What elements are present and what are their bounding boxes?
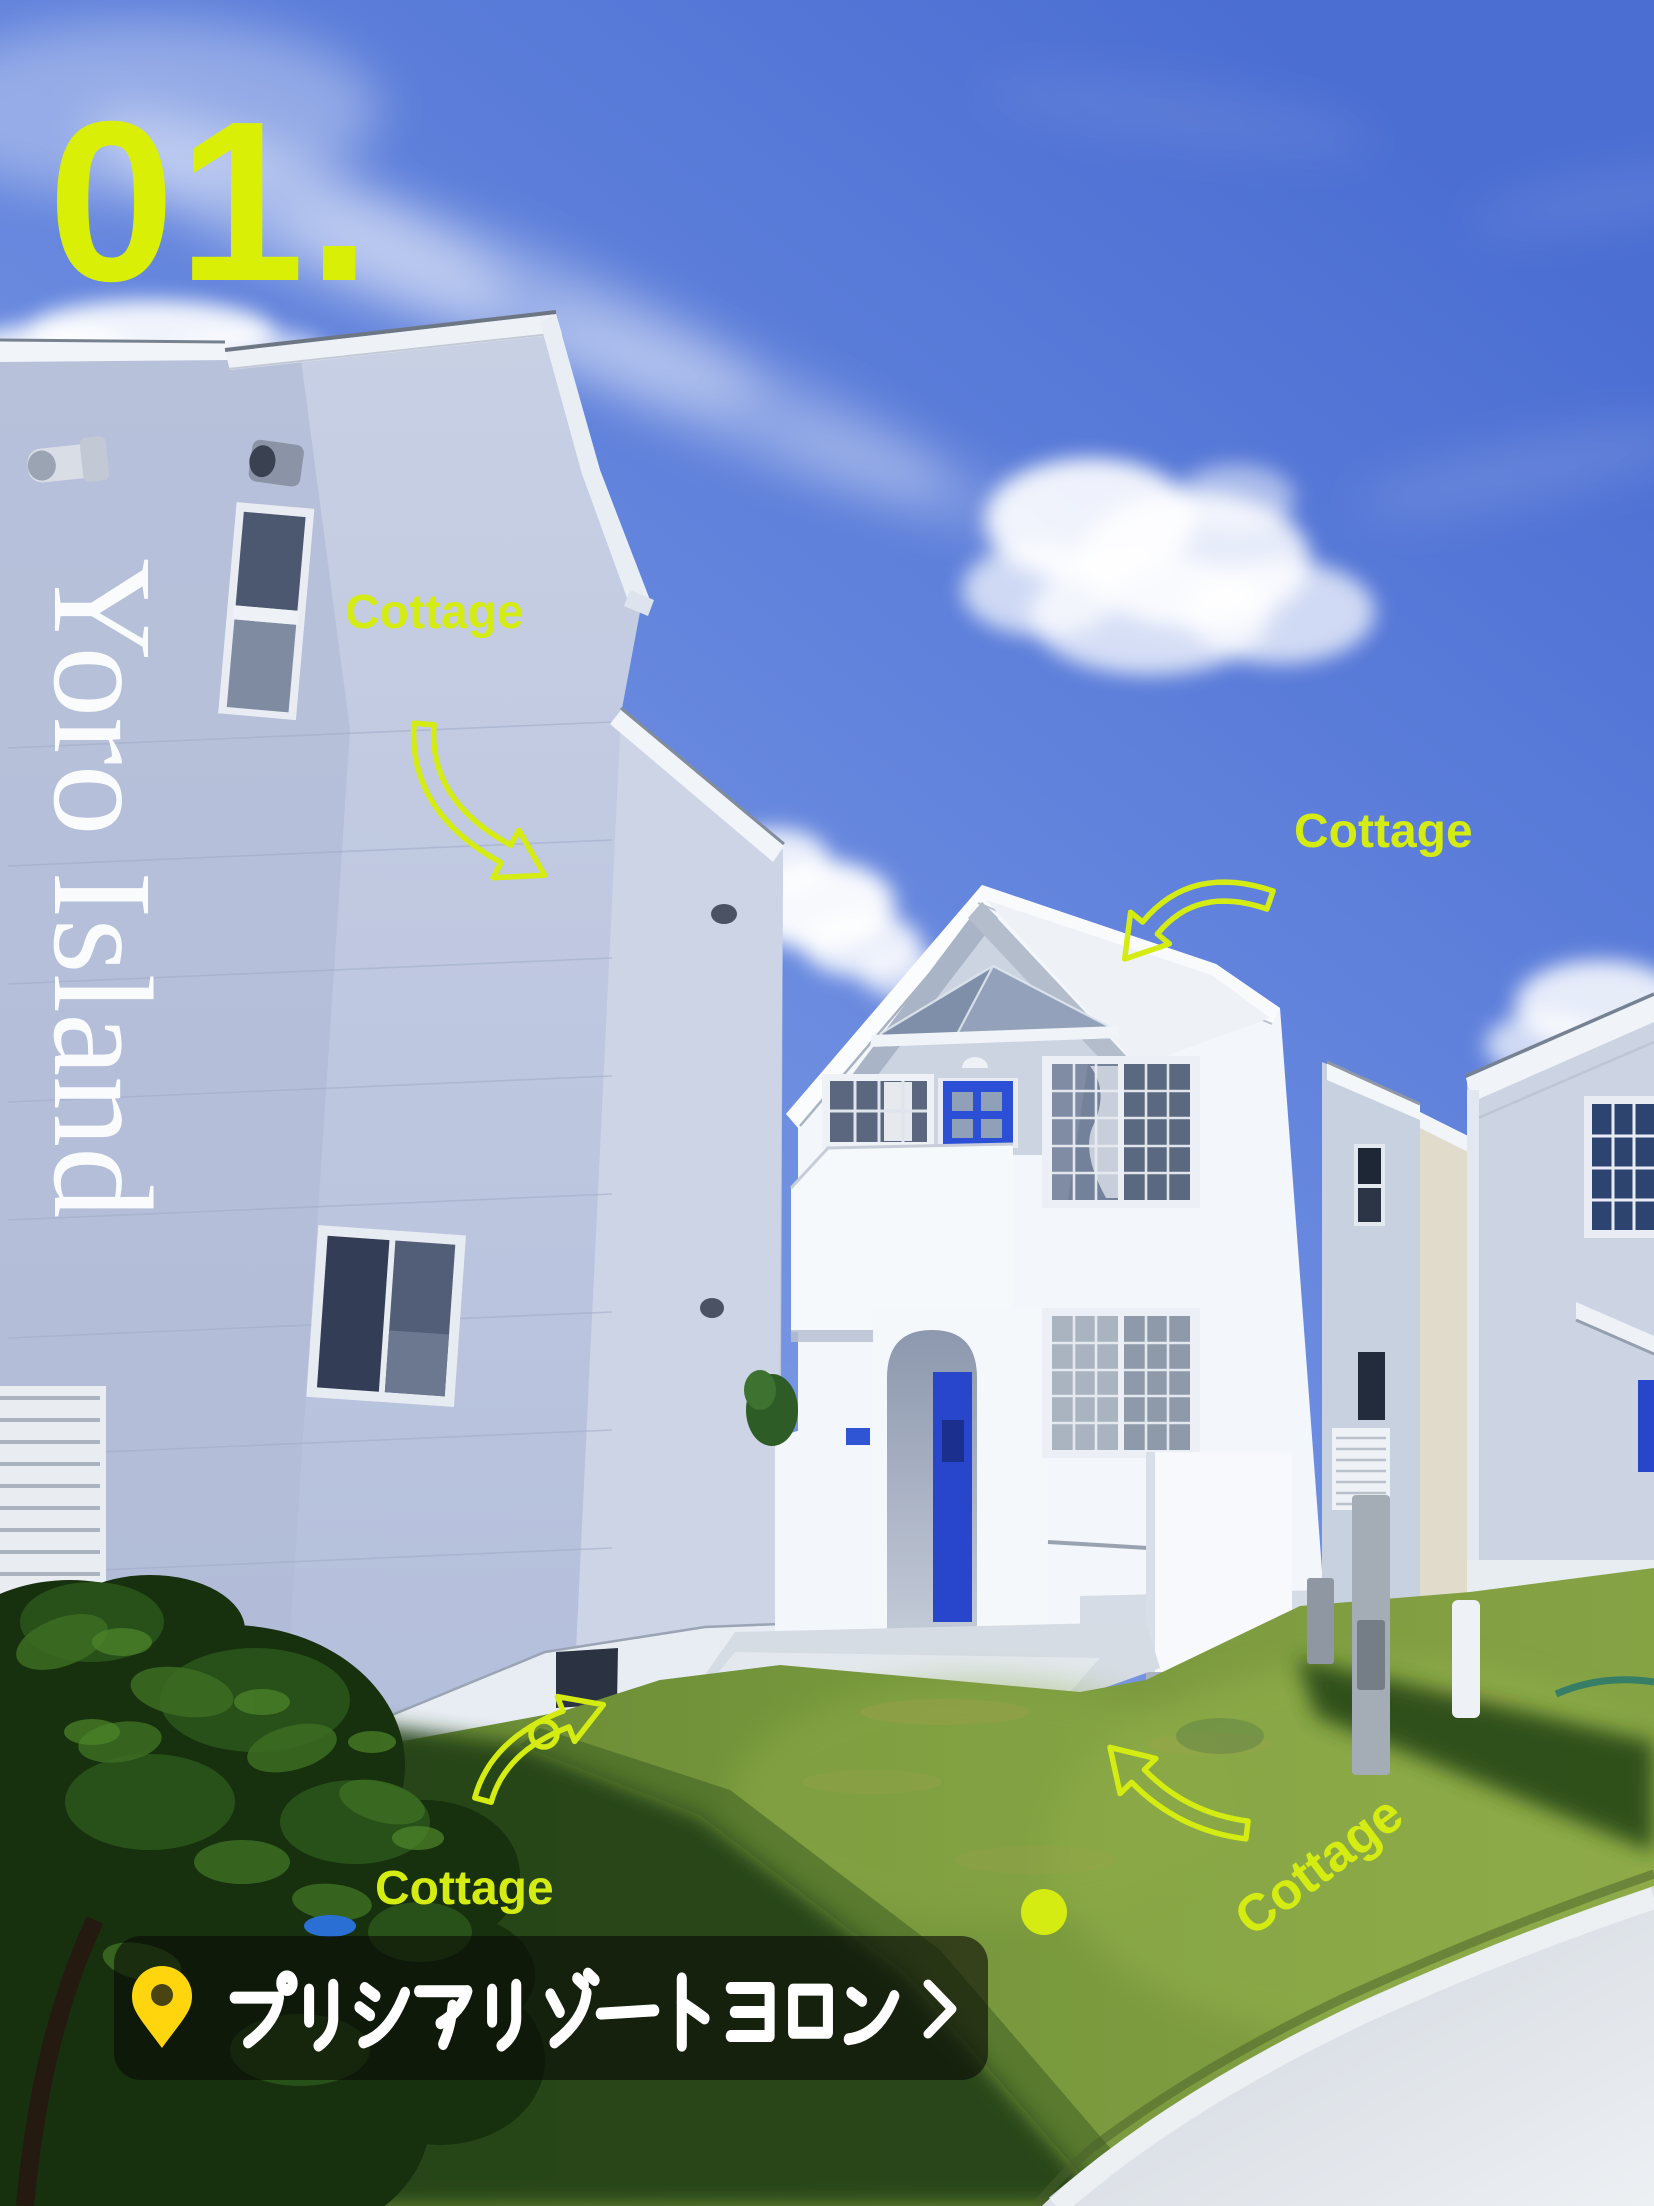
- svg-text:Cottage: Cottage: [1294, 805, 1473, 858]
- svg-text:Cottage: Cottage: [375, 1862, 554, 1915]
- svg-text:01.: 01.: [48, 75, 374, 329]
- svg-text:Yoro Island: Yoro Island: [24, 558, 182, 1218]
- svg-text:Cottage: Cottage: [345, 586, 524, 639]
